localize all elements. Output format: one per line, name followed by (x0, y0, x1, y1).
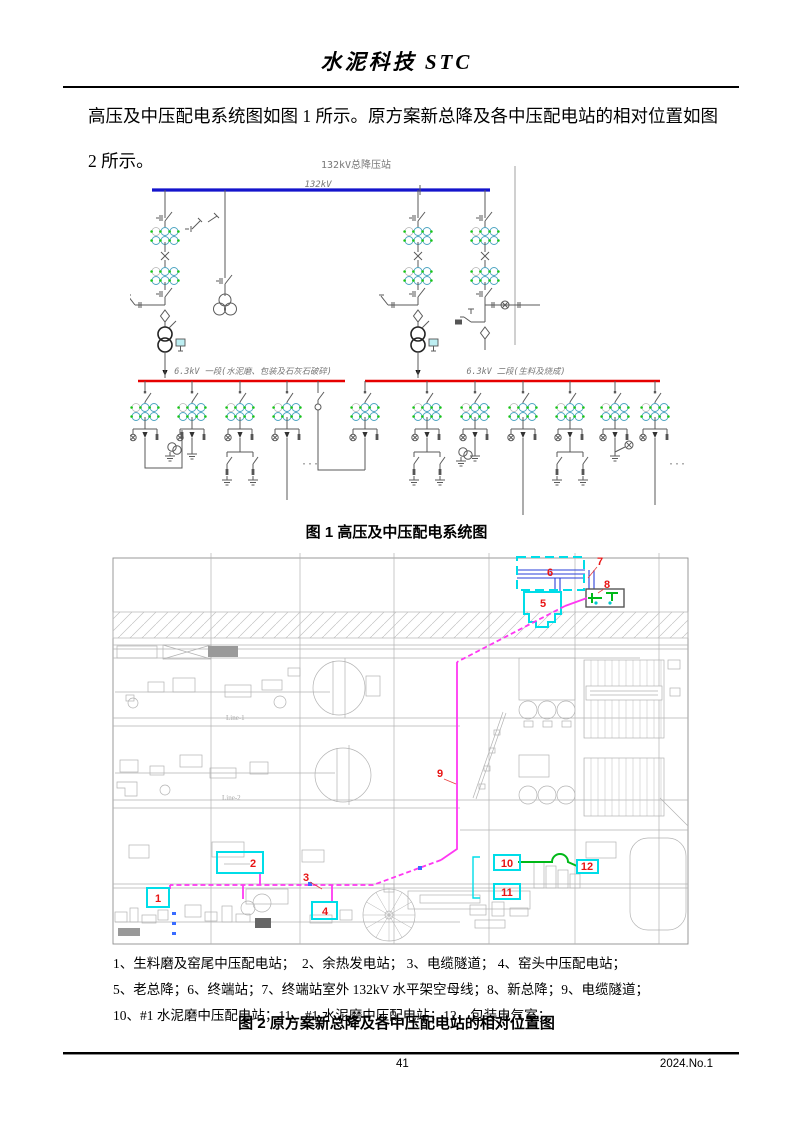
plan-label-line1: Line-1 (226, 714, 245, 722)
issue-label: 2024.No.1 (660, 1058, 713, 1070)
marker-4: 4 (312, 902, 337, 919)
hv-feeder-2-station-transformer (214, 190, 237, 315)
mv-feeders-bus1: ··· (130, 381, 365, 500)
marker-7: 7 (588, 556, 603, 578)
marker-10: 10 (494, 855, 520, 870)
journal-page: 水泥科技 STC 高压及中压配电系统图如图 1 所示。原方案新总降及各中压配电站… (0, 0, 793, 1122)
figure1-caption: 图 1 高压及中压配电系统图 (0, 521, 793, 542)
page-number: 41 (396, 1058, 456, 1070)
svg-text:6: 6 (547, 567, 553, 579)
radial-stacker (363, 884, 415, 941)
marker-2: 2 (217, 852, 263, 873)
legend-line-2: 5、老总降；6、终端站；7、终端站室外 132kV 水平架空母线；8、新总降；9… (113, 977, 713, 1003)
svg-text:4: 4 (322, 906, 329, 918)
journal-title: 水泥科技 STC (0, 46, 793, 76)
svg-text:9: 9 (437, 768, 443, 780)
mv-feeders-bus2: ··· (350, 381, 686, 515)
packing-room-link (518, 854, 577, 866)
figure1-power-system-diagram: 132kV总降压站 132kV (130, 155, 696, 527)
fig1-bus1-label: 6.3kV 一段(水泥磨、包装及石灰石破碎) (174, 366, 332, 376)
new-substation-box (586, 589, 624, 607)
svg-text:8: 8 (604, 579, 610, 591)
svg-text:12: 12 (581, 861, 593, 873)
svg-text:7: 7 (597, 556, 603, 568)
site-plan-background: Line-1 Line-2 (113, 553, 688, 944)
marker-1: 1 (147, 888, 169, 907)
marker-6: 6 (547, 567, 553, 579)
svg-text:3: 3 (303, 872, 309, 884)
svg-text:1: 1 (155, 893, 161, 905)
mv-station-connector (473, 857, 480, 898)
marker-12: 12 (577, 860, 598, 873)
figure2-site-plan: Line-1 Line-2 (110, 552, 693, 949)
hv-feeder-4 (455, 190, 540, 350)
figure2-caption: 图 2 原方案新总降及各中压配电站的相对位置图 (0, 1012, 793, 1033)
legend-line-1: 1、生料磨及窑尾中压配电站； 2、余热发电站； 3、电缆隧道； 4、窑头中压配电… (113, 951, 713, 977)
footer-rule (63, 1052, 739, 1054)
overhead-busbar-132kv (517, 570, 594, 592)
hv-feeder-1 (130, 190, 185, 378)
header-rule (63, 86, 739, 88)
plan-label-line2: Line-2 (222, 794, 241, 802)
marker-11: 11 (494, 884, 520, 899)
fig1-ellipsis-1: ··· (301, 459, 319, 470)
svg-text:2: 2 (250, 858, 256, 870)
marker-3: 3 (303, 872, 322, 889)
svg-text:10: 10 (501, 858, 513, 870)
svg-text:5: 5 (540, 598, 546, 610)
marker-5: 5 (540, 598, 546, 610)
hv-feeder-3 (379, 190, 438, 378)
fig1-ellipsis-2: ··· (668, 459, 686, 470)
svg-text:11: 11 (501, 887, 513, 899)
fig1-station-title: 132kV总降压站 (321, 158, 391, 171)
marker-9: 9 (437, 768, 456, 784)
fig1-bus2-label: 6.3kV 二段(生料及烧成) (467, 366, 566, 376)
